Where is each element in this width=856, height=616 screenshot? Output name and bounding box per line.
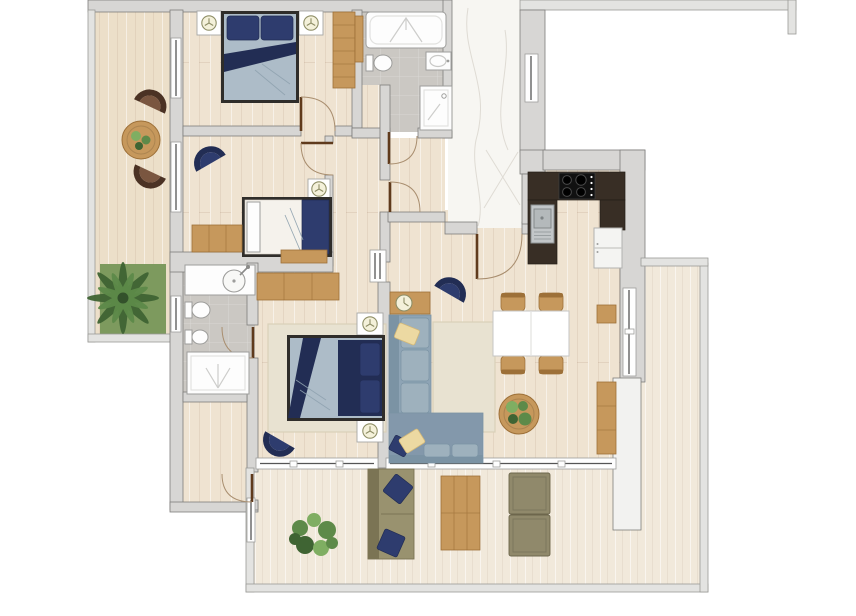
wall-kitchen-junction [520,150,545,174]
outdoor-pouf [509,473,550,514]
toilet [366,55,392,71]
double-bed [287,335,385,421]
wall-dressing-bottom [170,502,258,512]
window-master-terrace [256,458,378,469]
window-bedroom2-left [171,142,181,212]
outdoor-sofa [368,469,414,559]
dining-chair [501,356,525,374]
terrace-wall-bottom [246,584,708,592]
wardrobe [192,225,242,252]
wall-bedroom1-bottom-b [335,126,352,136]
wardrobe [257,273,339,300]
wall-storage-bottom [388,212,445,222]
plant [131,131,141,141]
terrace-wall-arm-top [641,258,708,266]
wall-top [88,0,448,12]
lamp-icon [304,16,318,30]
plant [506,401,518,413]
wall-bedroom1-bottom-a [183,126,301,136]
pillow [360,380,380,413]
lamp-icon [202,16,216,30]
coffee-table [499,394,539,434]
floor-plan-page [0,0,856,616]
shower [420,86,452,130]
dining-chair [539,293,563,311]
lamp-icon [312,182,326,196]
sink [426,52,451,70]
bed-bench [281,250,327,263]
vanity-sink [185,265,255,295]
window-bedroom1-left [171,38,181,98]
wall-top-right-cap [788,0,796,34]
round-table [122,121,160,159]
window-living-right [623,288,636,376]
window-terrace-left [247,498,255,542]
wall-hall-bottom [445,222,477,234]
terrace-wall-right [700,263,708,592]
single-bed [242,197,332,257]
bathtub [366,12,446,48]
storage-room-floor [388,138,445,216]
dining-chair [501,293,525,311]
wall-balcony-bottom [88,334,173,342]
terrace-side-floor [641,263,705,470]
dining-chair [539,356,563,374]
toilet [185,302,210,318]
shower [187,352,249,394]
bidet [185,330,208,344]
lamp-icon [363,317,377,331]
pillow [261,16,293,40]
wardrobe [333,12,355,88]
wood-lounger [441,476,480,550]
pillow [247,202,260,252]
sideboard [597,382,616,454]
wall-balcony-outer-left [88,10,95,342]
pillow [227,16,259,40]
stove [559,173,595,199]
double-bed [221,11,299,103]
terrace-partition-wall [613,378,641,530]
floor-plan-canvas [0,0,856,616]
wall-top-right-bar [520,0,796,10]
bath-shelf [355,16,363,62]
blanket [302,200,329,254]
window-bathroom2-left [171,296,181,332]
wall-shelf [597,305,616,323]
counter-right [600,200,625,230]
lamp-icon [363,424,377,438]
fridge [594,228,622,268]
palm-tree [87,262,159,334]
sliding-door-living [370,250,386,282]
kitchen-sink [531,205,554,243]
window-hall-right [525,54,538,102]
pillow [360,343,380,376]
dressing-room-floor [183,393,247,505]
outdoor-pouf [509,515,550,556]
